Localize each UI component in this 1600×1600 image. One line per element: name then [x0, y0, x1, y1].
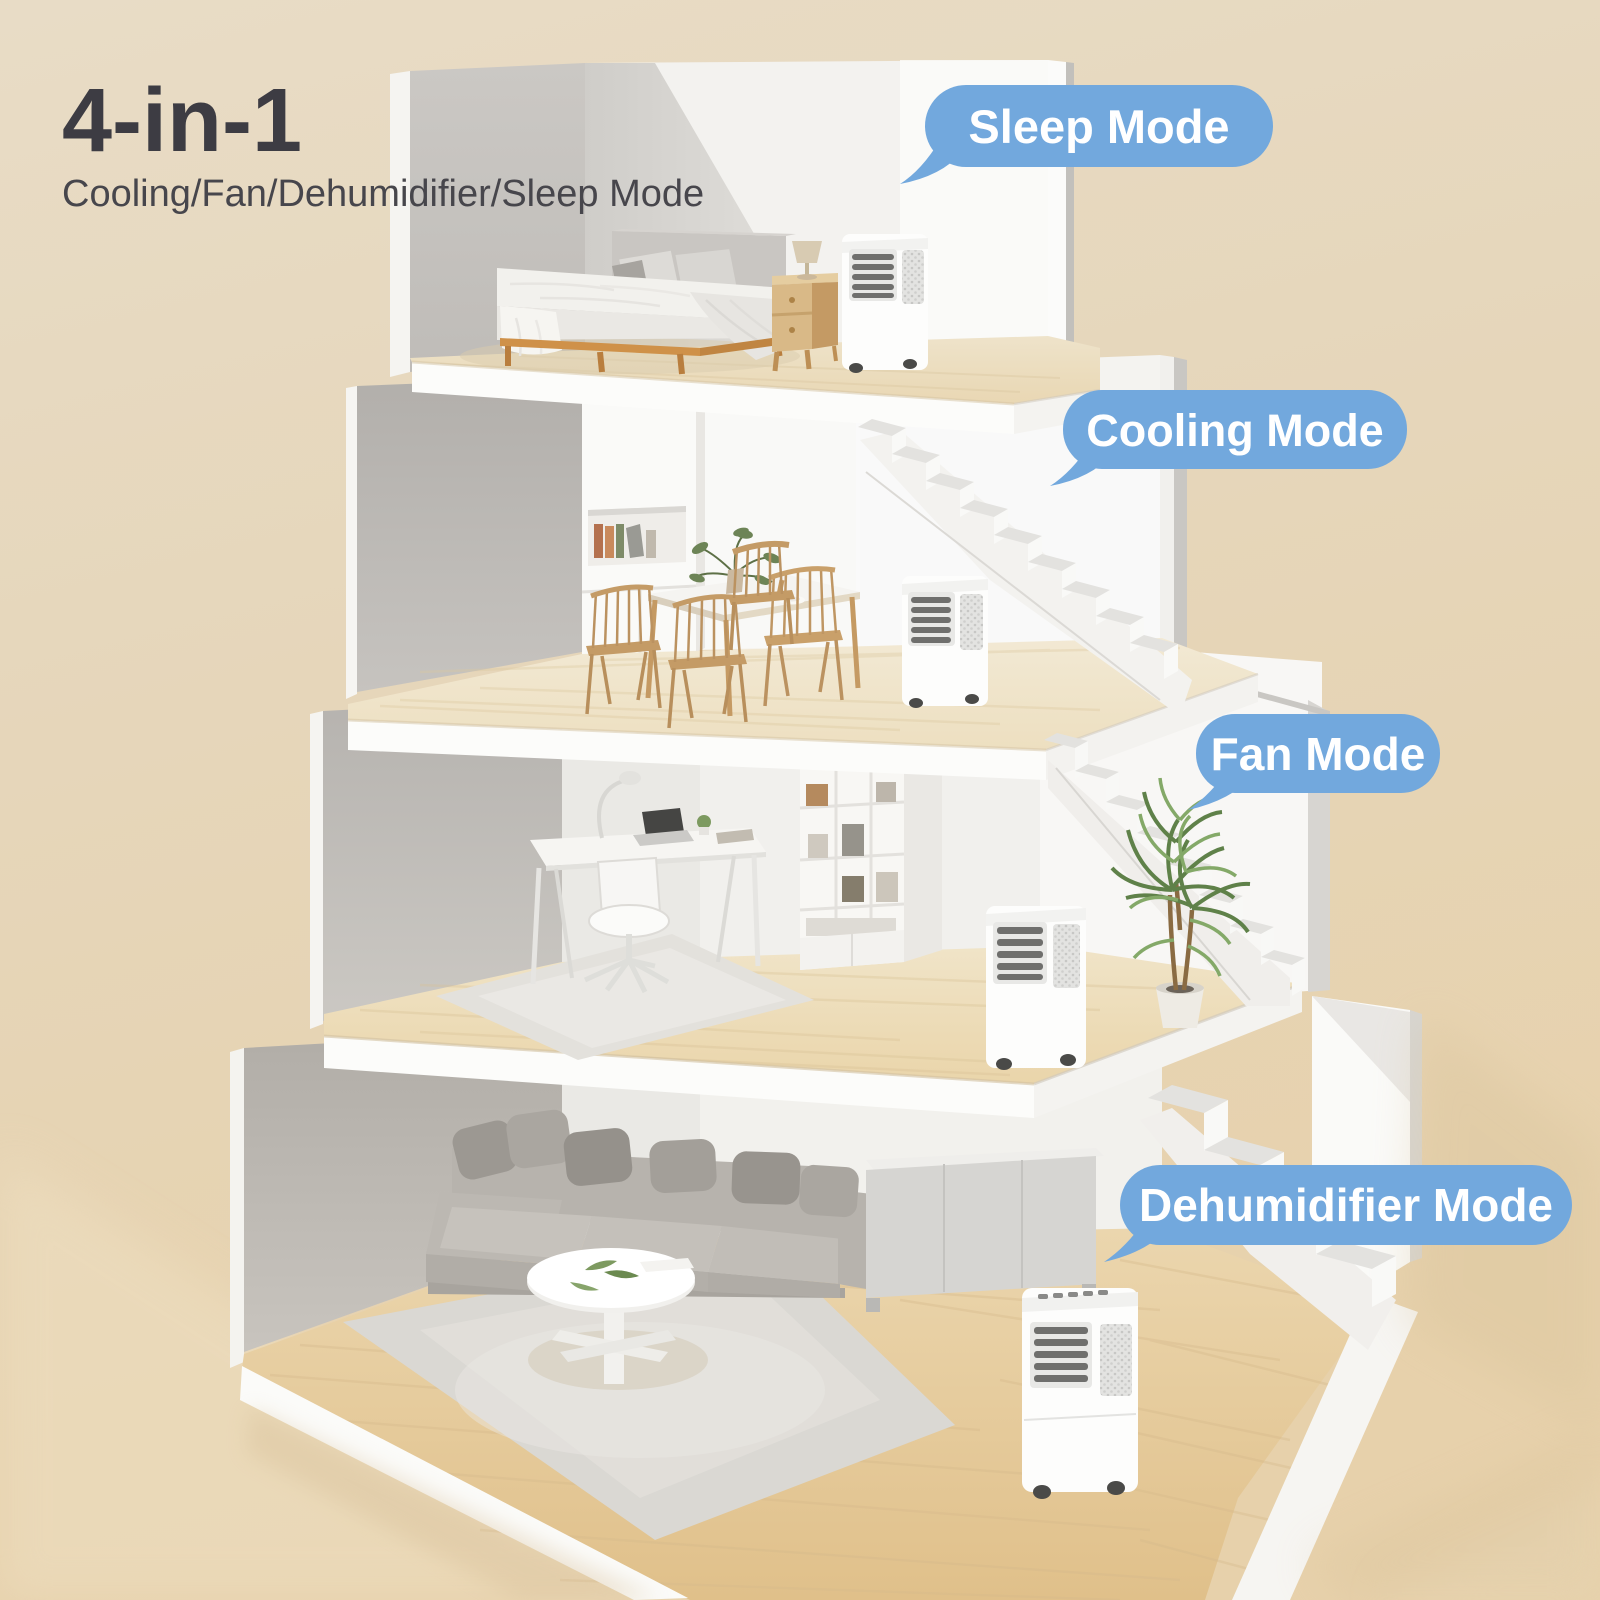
svg-text:Sleep Mode: Sleep Mode — [968, 100, 1229, 153]
svg-text:Dehumidifier Mode: Dehumidifier Mode — [1139, 1179, 1553, 1231]
svg-text:Cooling/Fan/Dehumidifier/Sleep: Cooling/Fan/Dehumidifier/Sleep Mode — [62, 173, 704, 215]
svg-text:4-in-1: 4-in-1 — [62, 71, 302, 171]
svg-text:Fan Mode: Fan Mode — [1211, 728, 1426, 780]
svg-text:Cooling Mode: Cooling Mode — [1086, 405, 1383, 456]
